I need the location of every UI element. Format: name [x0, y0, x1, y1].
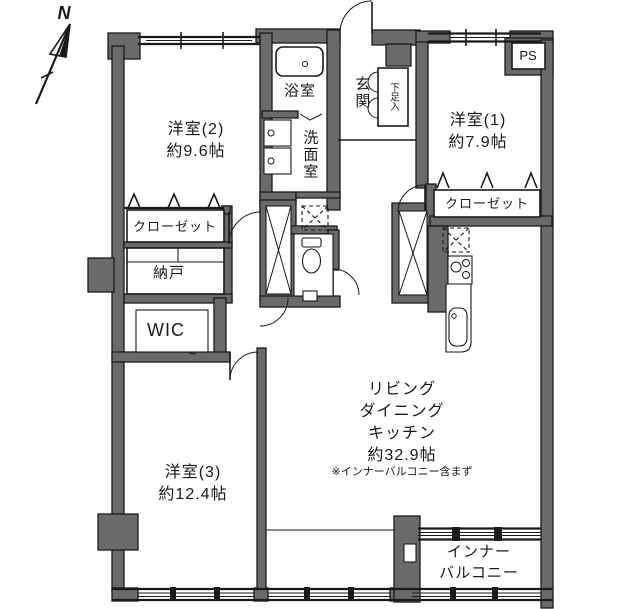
- window-mullion: [452, 527, 460, 541]
- label-west2-size: 約9.6帖: [166, 142, 225, 162]
- hanger-icon: [208, 194, 220, 208]
- label-west1-size: 約7.9帖: [448, 133, 507, 153]
- door-arc-west3: [230, 352, 258, 380]
- label-west1-name: 洋室(1): [450, 111, 507, 131]
- hanger-icon: [481, 173, 493, 188]
- wall-segment: [386, 44, 411, 66]
- bathtub-icon: [276, 47, 323, 76]
- wall-segment: [372, 30, 420, 45]
- label-ldk-size: 約32.9帖: [367, 446, 436, 466]
- label-ldk-line1: リビング: [368, 380, 436, 400]
- wall-segment: [112, 46, 124, 592]
- door-arc-entrance: [340, 1, 372, 33]
- toilet-cabinet-icon: [303, 291, 317, 301]
- door-arc-west2: [229, 212, 261, 244]
- window-mullion: [170, 587, 176, 601]
- north-arrow-icon: [36, 24, 70, 104]
- window-mullion: [492, 587, 498, 601]
- wall-segment: [88, 258, 114, 292]
- wall-segment: [257, 348, 266, 589]
- label-washroom: 洗面室: [300, 130, 319, 181]
- hanger-icon: [437, 173, 449, 188]
- label-bath: 浴室: [284, 83, 316, 102]
- label-west3-size: 約12.4帖: [158, 485, 227, 505]
- compass-label: N: [58, 2, 71, 25]
- label-balcony-line2: バルコニー: [439, 565, 519, 584]
- floorplan: N 洋室(2) 約9.6帖 洋室(1) 約7.9帖 洋室(3) 約12.4帖 浴…: [0, 0, 627, 609]
- door-fold-bath: [300, 114, 322, 120]
- label-ldk-line3: キッチン: [368, 424, 436, 444]
- wall-segment: [112, 352, 230, 362]
- wall-segment: [260, 296, 340, 307]
- window-mullion: [494, 527, 502, 541]
- hanger-icon: [168, 194, 180, 208]
- label-ldk-line2: ダイニング: [359, 402, 444, 422]
- wall-segment: [296, 192, 340, 198]
- label-west2-name: 洋室(2): [168, 120, 225, 140]
- north-arrow-line: [36, 24, 70, 104]
- label-west3-name: 洋室(3): [165, 463, 222, 483]
- hanger-icon: [525, 173, 537, 188]
- hanger-icon: [128, 194, 140, 208]
- label-storage: 納戸: [153, 265, 185, 284]
- wall-segment: [124, 242, 232, 248]
- label-pipe-space: PS: [519, 48, 536, 64]
- window-mullion: [304, 587, 310, 601]
- wall-segment: [214, 298, 226, 354]
- wall-segment: [262, 111, 298, 118]
- wall-segment: [428, 226, 448, 312]
- toilet-bowl-icon: [303, 249, 321, 273]
- window-mullion: [214, 587, 220, 601]
- wall-segment: [327, 30, 340, 210]
- wall-segment: [541, 40, 553, 608]
- kitchen-sink-icon: [449, 308, 467, 346]
- wall-segment: [98, 514, 138, 550]
- window-mullion: [348, 587, 354, 601]
- label-closet-west1: クローゼット: [445, 196, 529, 212]
- wall-segment: [416, 42, 428, 188]
- pillar-notch: [404, 544, 416, 562]
- label-balcony-line1: インナー: [447, 544, 511, 563]
- label-ldk-note: ※インナーバルコニー含まず: [332, 466, 473, 480]
- window-mullion: [450, 587, 456, 601]
- label-wic: WIC: [147, 319, 185, 342]
- door-arc-toilet: [333, 269, 359, 295]
- label-entrance: 玄関: [352, 76, 371, 110]
- label-closet-west2: クローゼット: [133, 219, 217, 235]
- toilet-tank-icon: [302, 238, 321, 247]
- label-shoe-cabinet: 下足入: [387, 83, 399, 112]
